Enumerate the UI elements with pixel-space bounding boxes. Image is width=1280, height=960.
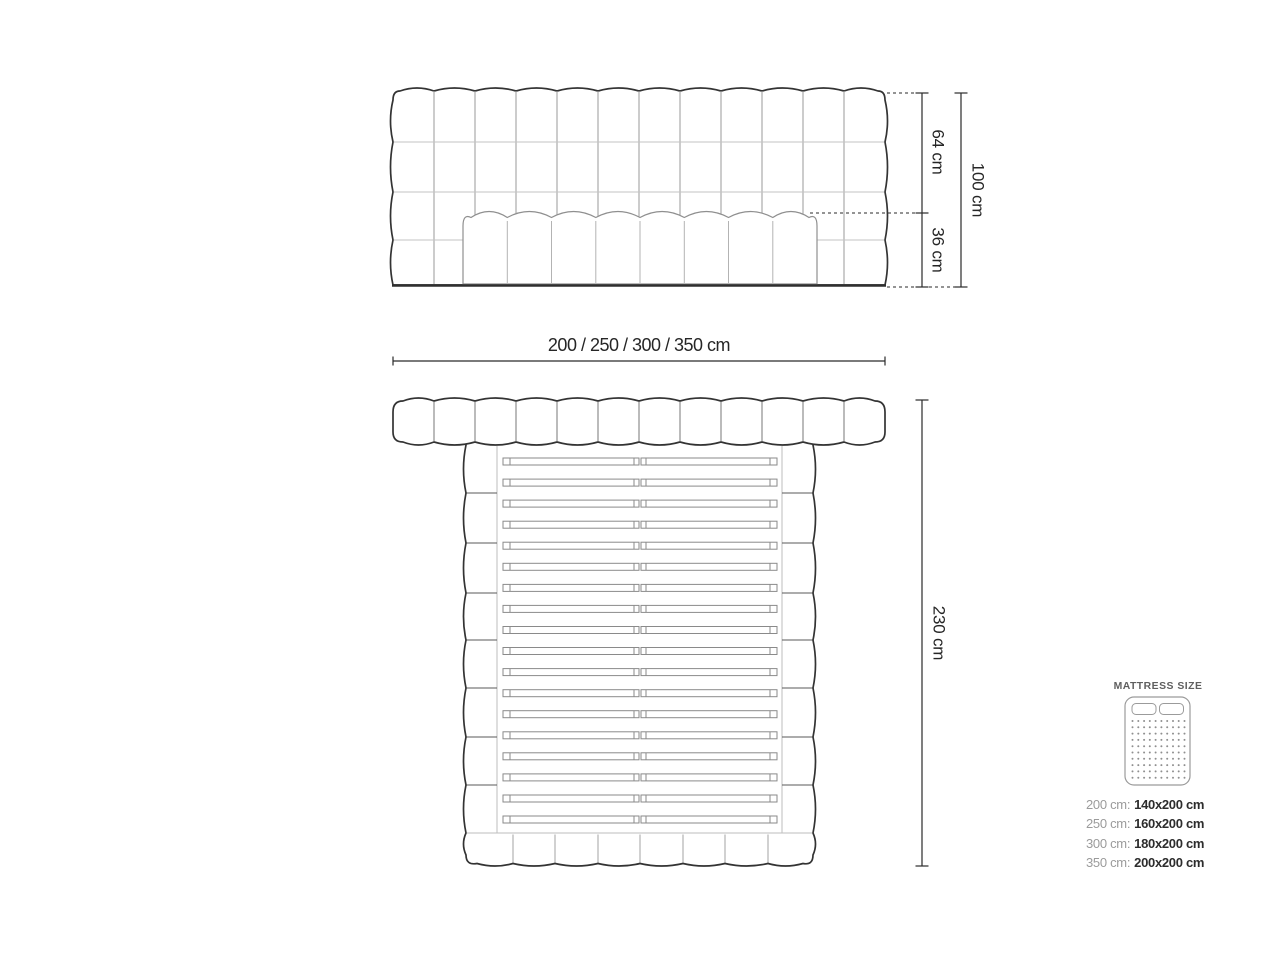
slat-left bbox=[503, 627, 639, 634]
quilting-dot bbox=[1184, 733, 1186, 735]
quilting-dot bbox=[1143, 752, 1145, 754]
quilting-dot bbox=[1149, 726, 1151, 728]
quilting-dot bbox=[1155, 752, 1157, 754]
mattress-size-panel: MATTRESS SIZE 200 cm:140x200 cm 250 cm:1… bbox=[1086, 681, 1204, 870]
quilting-dot bbox=[1155, 758, 1157, 760]
legend-row-300: 300 cm:180x200 cm bbox=[1086, 836, 1204, 851]
legend-value: 180x200 cm bbox=[1134, 836, 1204, 851]
legend-label: 300 cm: bbox=[1086, 836, 1130, 851]
quilting-dot bbox=[1149, 764, 1151, 766]
slat-left bbox=[503, 542, 639, 549]
quilting-dot bbox=[1143, 745, 1145, 747]
legend-value: 140x200 cm bbox=[1134, 797, 1204, 812]
quilting-dot bbox=[1155, 770, 1157, 772]
quilting-dot bbox=[1166, 764, 1168, 766]
quilting-dot bbox=[1184, 758, 1186, 760]
quilting-dot bbox=[1166, 777, 1168, 779]
quilting-dot bbox=[1137, 745, 1139, 747]
bed-dimensions-diagram: 64 cm 36 cm 100 cm 200 / 250 / 300 / 350… bbox=[0, 0, 1280, 960]
quilting-dot bbox=[1143, 726, 1145, 728]
quilting-dot bbox=[1132, 720, 1134, 722]
quilting-dot bbox=[1160, 739, 1162, 741]
quilting-dot bbox=[1184, 720, 1186, 722]
quilting-dot bbox=[1184, 770, 1186, 772]
quilting-dot bbox=[1184, 745, 1186, 747]
quilting-dot bbox=[1166, 758, 1168, 760]
mattress-size-legend: 200 cm:140x200 cm 250 cm:160x200 cm 300 … bbox=[1086, 797, 1204, 870]
quilting-dot bbox=[1137, 752, 1139, 754]
quilting-dot bbox=[1178, 777, 1180, 779]
mattress-outline bbox=[1125, 697, 1190, 785]
quilting-dot bbox=[1137, 720, 1139, 722]
slat-left bbox=[503, 795, 639, 802]
quilting-dot bbox=[1132, 758, 1134, 760]
slat-right bbox=[641, 732, 777, 739]
quilting-dot bbox=[1160, 745, 1162, 747]
pillow-left bbox=[1132, 704, 1156, 715]
quilting-dot bbox=[1184, 764, 1186, 766]
quilting-dot bbox=[1178, 764, 1180, 766]
quilting-dot bbox=[1137, 764, 1139, 766]
bed-frame-top-view bbox=[464, 445, 816, 866]
quilting-dot bbox=[1172, 745, 1174, 747]
quilting-dot bbox=[1149, 745, 1151, 747]
slat-left bbox=[503, 584, 639, 591]
quilting-dot bbox=[1149, 758, 1151, 760]
quilting-dot bbox=[1149, 770, 1151, 772]
legend-label: 200 cm: bbox=[1086, 797, 1130, 812]
slat-left bbox=[503, 753, 639, 760]
quilting-dot bbox=[1155, 733, 1157, 735]
quilting-dot bbox=[1184, 752, 1186, 754]
quilting-dot bbox=[1172, 764, 1174, 766]
slat-left bbox=[503, 732, 639, 739]
quilting-dot bbox=[1166, 733, 1168, 735]
bed-dimensions-diagram-page: 64 cm 36 cm 100 cm 200 / 250 / 300 / 350… bbox=[0, 0, 1280, 960]
legend-row-250: 250 cm:160x200 cm bbox=[1086, 816, 1204, 831]
quilting-dot bbox=[1178, 745, 1180, 747]
slat-right bbox=[641, 500, 777, 507]
legend-value: 160x200 cm bbox=[1134, 816, 1204, 831]
quilting-dot bbox=[1172, 777, 1174, 779]
legend-label: 350 cm: bbox=[1086, 855, 1130, 870]
width-dimension-line bbox=[393, 357, 885, 366]
quilting-dot bbox=[1166, 752, 1168, 754]
quilting-dot bbox=[1143, 739, 1145, 741]
headboard-top-view bbox=[393, 398, 885, 445]
slat-right bbox=[641, 669, 777, 676]
mattress-panel-title: MATTRESS SIZE bbox=[1114, 681, 1203, 692]
quilting-dot bbox=[1160, 764, 1162, 766]
quilting-dot bbox=[1166, 770, 1168, 772]
dim-label-height-lower: 36 cm bbox=[929, 227, 948, 272]
quilting-dot bbox=[1160, 733, 1162, 735]
quilting-dot bbox=[1172, 720, 1174, 722]
quilting-dot bbox=[1132, 726, 1134, 728]
slat-left bbox=[503, 500, 639, 507]
quilting-dot bbox=[1178, 770, 1180, 772]
quilting-dot bbox=[1132, 777, 1134, 779]
mattress-quilting-dots bbox=[1132, 720, 1186, 779]
quilting-dot bbox=[1172, 739, 1174, 741]
quilting-dot bbox=[1155, 726, 1157, 728]
slat-right bbox=[641, 521, 777, 528]
quilting-dot bbox=[1155, 720, 1157, 722]
slat-right bbox=[641, 774, 777, 781]
pillow-right bbox=[1160, 704, 1184, 715]
quilting-dot bbox=[1166, 720, 1168, 722]
slat-right bbox=[641, 479, 777, 486]
quilting-dot bbox=[1143, 764, 1145, 766]
slat-left bbox=[503, 774, 639, 781]
mattress-top-view-icon bbox=[1125, 697, 1190, 785]
slat-right bbox=[641, 711, 777, 718]
headboard-front-view bbox=[391, 88, 888, 286]
slat-left bbox=[503, 605, 639, 612]
quilting-dot bbox=[1132, 764, 1134, 766]
quilting-dot bbox=[1149, 733, 1151, 735]
quilting-dot bbox=[1172, 758, 1174, 760]
top-view-dimensions bbox=[916, 400, 929, 866]
quilting-dot bbox=[1155, 777, 1157, 779]
quilting-dot bbox=[1132, 770, 1134, 772]
quilting-dot bbox=[1132, 733, 1134, 735]
slat-left bbox=[503, 521, 639, 528]
quilting-dot bbox=[1137, 777, 1139, 779]
quilting-dot bbox=[1160, 720, 1162, 722]
quilting-dot bbox=[1149, 777, 1151, 779]
legend-row-200: 200 cm:140x200 cm bbox=[1086, 797, 1204, 812]
quilting-dot bbox=[1143, 720, 1145, 722]
quilting-dot bbox=[1137, 733, 1139, 735]
slat-right bbox=[641, 458, 777, 465]
quilting-dot bbox=[1166, 739, 1168, 741]
quilting-dot bbox=[1178, 752, 1180, 754]
dim-label-height-upper: 64 cm bbox=[929, 129, 948, 174]
slat-left bbox=[503, 563, 639, 570]
quilting-dot bbox=[1137, 726, 1139, 728]
quilting-dot bbox=[1137, 770, 1139, 772]
dim-label-depth-total: 230 cm bbox=[930, 606, 949, 661]
quilting-dot bbox=[1143, 758, 1145, 760]
quilting-dot bbox=[1172, 726, 1174, 728]
quilting-dot bbox=[1137, 739, 1139, 741]
legend-row-350: 350 cm:200x200 cm bbox=[1086, 855, 1204, 870]
quilting-dot bbox=[1172, 770, 1174, 772]
slat-right bbox=[641, 542, 777, 549]
quilting-dot bbox=[1172, 733, 1174, 735]
legend-value: 200x200 cm bbox=[1134, 855, 1204, 870]
dim-label-width-options: 200 / 250 / 300 / 350 cm bbox=[548, 335, 730, 355]
quilting-dot bbox=[1160, 752, 1162, 754]
quilting-dot bbox=[1143, 770, 1145, 772]
slat-right bbox=[641, 795, 777, 802]
quilting-dot bbox=[1132, 745, 1134, 747]
quilting-dot bbox=[1137, 758, 1139, 760]
slat-left bbox=[503, 648, 639, 655]
quilting-dot bbox=[1184, 726, 1186, 728]
slat-left bbox=[503, 669, 639, 676]
slat-right bbox=[641, 605, 777, 612]
slat-left bbox=[503, 816, 639, 823]
quilting-dot bbox=[1132, 739, 1134, 741]
quilting-dot bbox=[1155, 739, 1157, 741]
quilting-dot bbox=[1166, 745, 1168, 747]
quilting-dot bbox=[1149, 720, 1151, 722]
quilting-dot bbox=[1184, 739, 1186, 741]
quilting-dot bbox=[1160, 777, 1162, 779]
quilting-dot bbox=[1178, 733, 1180, 735]
quilting-dot bbox=[1160, 770, 1162, 772]
legend-label: 250 cm: bbox=[1086, 816, 1130, 831]
quilting-dot bbox=[1132, 752, 1134, 754]
quilting-dot bbox=[1143, 777, 1145, 779]
quilting-dot bbox=[1155, 764, 1157, 766]
slat-left bbox=[503, 479, 639, 486]
slat-right bbox=[641, 753, 777, 760]
quilting-dot bbox=[1155, 745, 1157, 747]
quilting-dot bbox=[1184, 777, 1186, 779]
quilting-dot bbox=[1166, 726, 1168, 728]
slat-left bbox=[503, 458, 639, 465]
quilting-dot bbox=[1160, 758, 1162, 760]
quilting-dot bbox=[1143, 733, 1145, 735]
quilting-dot bbox=[1149, 752, 1151, 754]
slat-right bbox=[641, 690, 777, 697]
quilting-dot bbox=[1178, 739, 1180, 741]
quilting-dot bbox=[1178, 720, 1180, 722]
quilting-dot bbox=[1149, 739, 1151, 741]
quilting-dot bbox=[1160, 726, 1162, 728]
quilting-dot bbox=[1172, 752, 1174, 754]
slat-left bbox=[503, 711, 639, 718]
slat-left bbox=[503, 690, 639, 697]
slat-right bbox=[641, 816, 777, 823]
slat-right bbox=[641, 563, 777, 570]
quilting-dot bbox=[1178, 758, 1180, 760]
slat-right bbox=[641, 648, 777, 655]
quilting-dot bbox=[1178, 726, 1180, 728]
slat-right bbox=[641, 627, 777, 634]
dim-label-height-total: 100 cm bbox=[969, 163, 988, 218]
slat-right bbox=[641, 584, 777, 591]
